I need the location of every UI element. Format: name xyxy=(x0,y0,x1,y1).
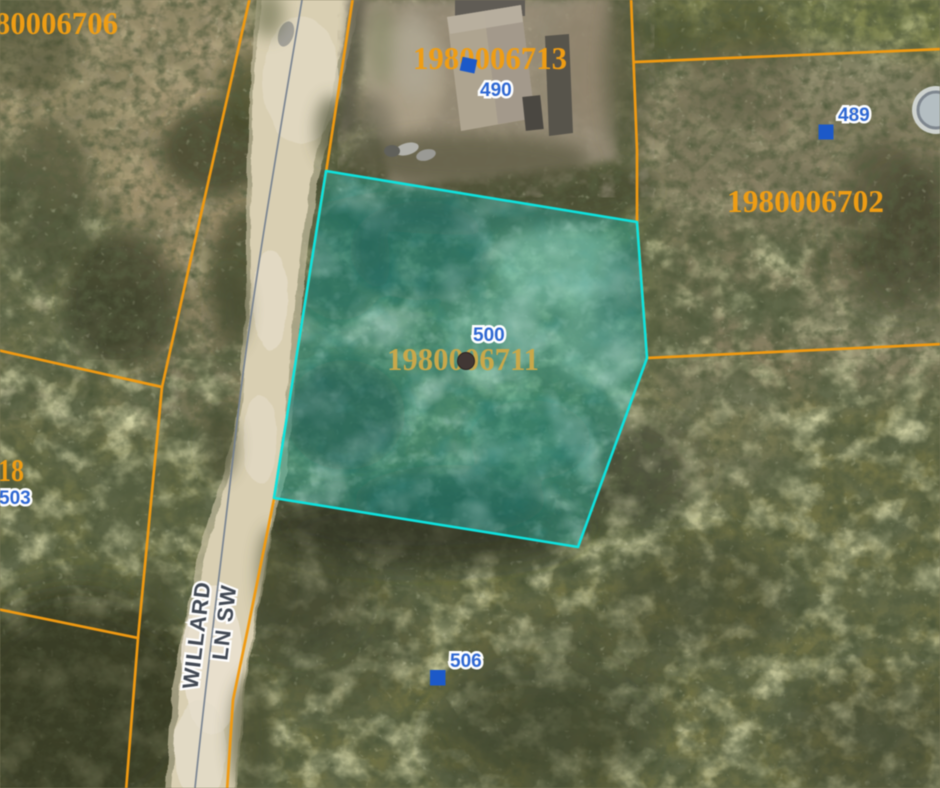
svg-text:1980006706: 1980006706 xyxy=(0,5,118,41)
svg-text:490: 490 xyxy=(480,80,512,101)
svg-text:500: 500 xyxy=(473,325,505,346)
svg-text:1980006713: 1980006713 xyxy=(413,40,567,76)
svg-text:489: 489 xyxy=(838,105,870,126)
svg-text:503: 503 xyxy=(0,488,31,509)
svg-text:1980006702: 1980006702 xyxy=(727,183,884,219)
svg-text:506: 506 xyxy=(450,651,482,672)
svg-text:18: 18 xyxy=(0,452,24,488)
